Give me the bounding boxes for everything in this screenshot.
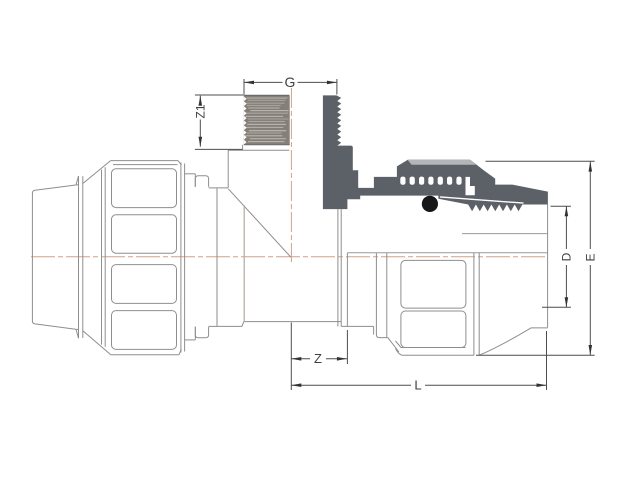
svg-text:E: E bbox=[583, 253, 597, 261]
svg-text:Z1: Z1 bbox=[193, 104, 207, 118]
svg-text:Z: Z bbox=[314, 351, 322, 366]
svg-text:D: D bbox=[559, 252, 573, 261]
svg-text:L: L bbox=[414, 378, 421, 393]
svg-text:G: G bbox=[285, 74, 296, 90]
